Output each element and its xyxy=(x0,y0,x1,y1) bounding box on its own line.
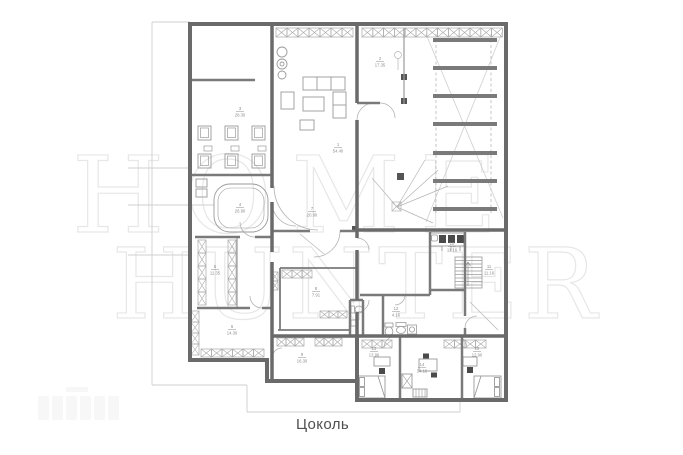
plant xyxy=(277,59,287,69)
window-box-cross xyxy=(276,28,287,37)
window-box-cross xyxy=(243,349,254,357)
window-box-cross xyxy=(405,28,416,37)
window-box-cross xyxy=(362,340,372,348)
window-box-cross xyxy=(309,28,320,37)
room-area: 11.35 xyxy=(210,271,221,276)
room-area: 16.30 xyxy=(297,359,308,364)
room-area: 14.30 xyxy=(227,331,238,336)
chair xyxy=(423,354,429,359)
coffee-table xyxy=(303,97,324,111)
window-box-cross xyxy=(455,340,466,348)
window-box-cross xyxy=(384,28,395,37)
window-box-cross xyxy=(320,28,331,37)
window-box-cross xyxy=(191,344,199,355)
ramp-bar xyxy=(433,38,497,42)
window-box-cross xyxy=(233,349,244,357)
room-number: 12 xyxy=(394,306,399,311)
chair xyxy=(379,368,385,374)
watermark: HOME HUNTER xyxy=(72,134,602,341)
window-box-cross xyxy=(459,28,470,37)
window-box-cross xyxy=(331,28,342,37)
living-room-furniture xyxy=(277,47,346,130)
armchair xyxy=(281,92,294,109)
ramp-bar xyxy=(433,207,497,211)
room-area: 12.90 xyxy=(472,353,483,358)
window-box-cross xyxy=(438,28,449,37)
stool xyxy=(439,235,446,243)
plant xyxy=(278,71,286,79)
room-number: 15 xyxy=(475,346,480,351)
room-area: 14.16 xyxy=(417,369,428,374)
window-box-cross xyxy=(448,28,459,37)
room-number: 3 xyxy=(239,106,242,111)
room-number: 13 xyxy=(372,346,377,351)
room-number: 10 xyxy=(450,241,455,246)
room-number: 14 xyxy=(420,362,425,367)
room-area: 7.91 xyxy=(312,293,321,298)
floor-plan-page: HOME HUNTER xyxy=(0,0,683,455)
window-box-cross xyxy=(201,349,212,357)
chair xyxy=(431,373,437,378)
window-box-cross xyxy=(416,28,427,37)
window-box-cross xyxy=(222,349,233,357)
window-box-cross xyxy=(254,349,265,357)
plant xyxy=(277,47,287,57)
window-box-cross xyxy=(492,28,503,37)
bedroom-furniture xyxy=(358,354,501,399)
bed xyxy=(474,376,501,398)
pouf xyxy=(300,120,314,130)
room-area: 11.16 xyxy=(447,248,458,253)
room-area: 54.40 xyxy=(333,149,344,154)
window-box-cross xyxy=(373,28,384,37)
ramp-bar xyxy=(433,151,497,155)
window-box-cross xyxy=(342,28,353,37)
window-box-cross xyxy=(287,28,298,37)
desk xyxy=(374,357,390,366)
window-box-cross xyxy=(444,340,455,348)
corner-logo xyxy=(38,387,119,420)
window-box-cross xyxy=(212,349,223,357)
room-number: 2 xyxy=(379,56,382,61)
room-area: 20.90 xyxy=(307,213,318,218)
chair xyxy=(467,367,473,373)
desk xyxy=(463,357,477,366)
room-area: 17.35 xyxy=(375,63,386,68)
window-box-cross xyxy=(382,340,392,348)
room-area: 4.16 xyxy=(392,313,401,318)
window-box-cross xyxy=(298,28,309,37)
floor-plan-drawing: HOME HUNTER xyxy=(0,0,683,455)
room-area: 12.90 xyxy=(369,353,380,358)
stool xyxy=(457,235,464,243)
window-box-cross xyxy=(427,28,438,37)
ramp-bar xyxy=(433,94,497,98)
ramp-bar xyxy=(433,122,497,126)
room-area: 26.90 xyxy=(235,209,246,214)
window-box-cross xyxy=(362,28,373,37)
ramp-bar xyxy=(433,66,497,70)
room-number: 9 xyxy=(301,352,304,357)
floor-caption: Цоколь xyxy=(296,416,349,433)
room-area: 28.30 xyxy=(235,113,246,118)
bed xyxy=(358,376,385,398)
window-box-cross xyxy=(481,28,492,37)
ramp-bar xyxy=(433,179,497,183)
window-box-cross xyxy=(470,28,481,37)
room-area: 11.16 xyxy=(484,271,495,276)
sofa xyxy=(303,77,345,90)
room-number: 11 xyxy=(487,264,492,269)
